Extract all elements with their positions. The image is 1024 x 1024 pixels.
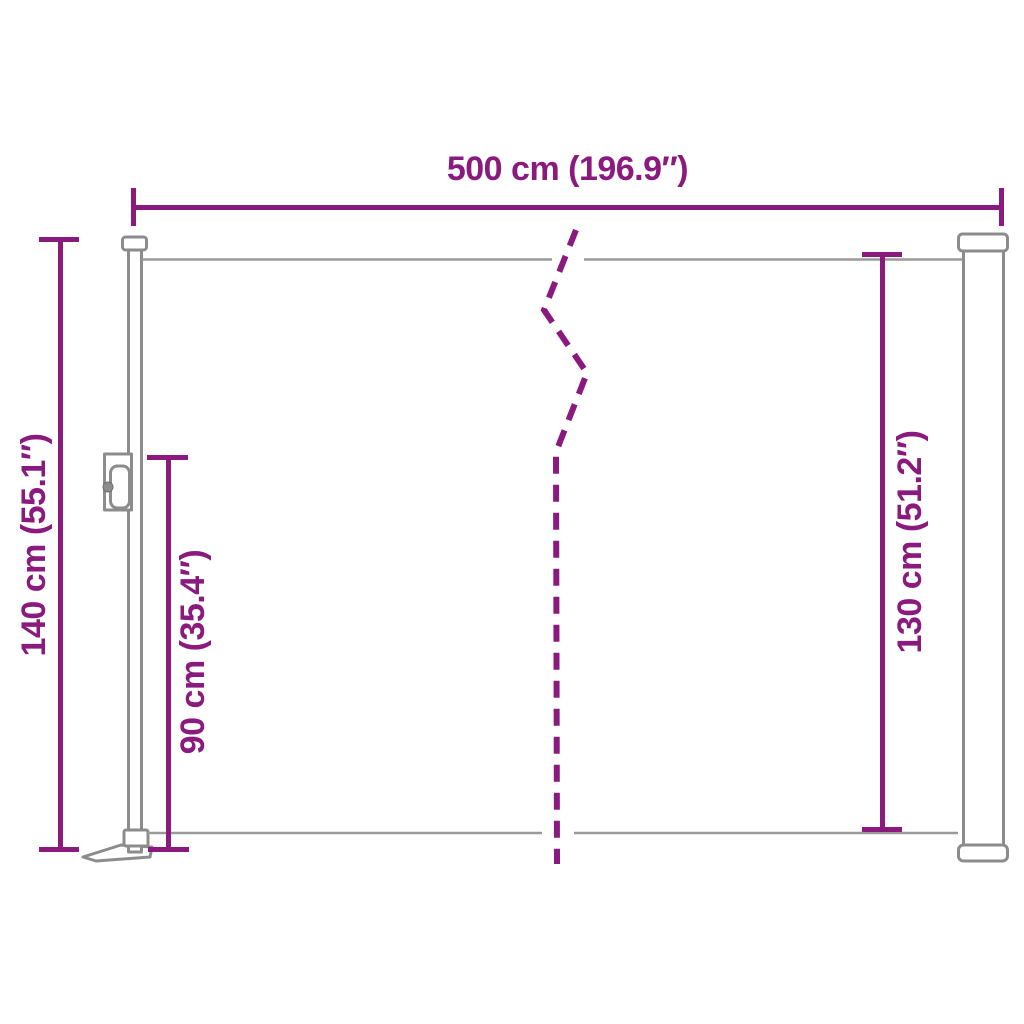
dimension-diagram: 500 cm (196.9″) 140 cm (55.1″) 90 cm (35… — [0, 0, 1024, 1024]
width-dimension-tick-left — [131, 188, 136, 226]
break-line — [544, 230, 587, 864]
pole-body — [129, 246, 142, 852]
total-height-dimension-label: 140 cm (55.1″) — [14, 345, 54, 745]
fabric-height-dimension-label: 130 cm (51.2″) — [890, 342, 930, 742]
total-height-tick-bottom — [39, 847, 79, 852]
fabric-height-dimension-line — [880, 254, 885, 832]
width-dimension-tick-right — [999, 188, 1004, 226]
inner-height-dimension-line — [166, 457, 171, 852]
fabric-height-tick-bottom — [862, 827, 902, 832]
total-height-dimension-line — [58, 239, 63, 852]
cassette-top-cap — [959, 234, 1008, 251]
pole-top-cap — [123, 237, 147, 250]
total-height-tick-top — [39, 237, 79, 242]
cassette-bottom-cap — [959, 845, 1008, 861]
mount-bracket-knob — [103, 482, 113, 492]
cassette-body — [964, 249, 1004, 849]
width-dimension-line — [131, 205, 1004, 210]
fabric-height-tick-top — [862, 252, 902, 257]
width-dimension-label: 500 cm (196.9″) — [131, 147, 1004, 191]
inner-height-dimension-label: 90 cm (35.4″) — [173, 452, 213, 852]
pole-bottom-connector — [124, 830, 148, 846]
